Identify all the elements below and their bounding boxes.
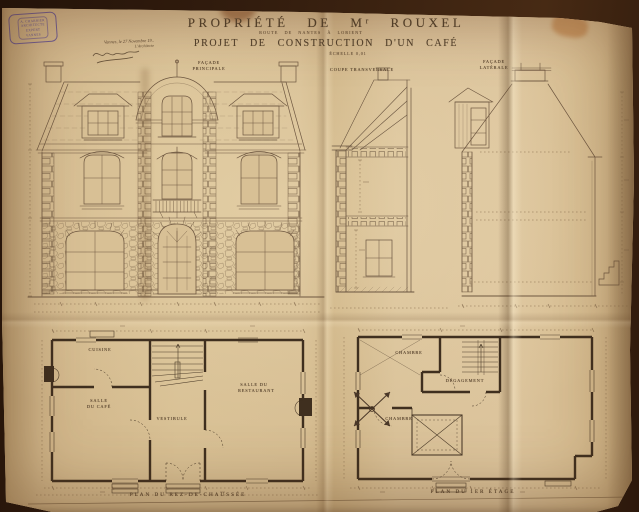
room-label-bedroom-1: Chambre xyxy=(386,350,432,356)
room-label-hall: Vestibule xyxy=(144,416,200,422)
caption-first-floor-plan: Plan du 1er Étage xyxy=(398,489,548,496)
architectural-drawing xyxy=(0,0,639,512)
first-floor-plan-drawing xyxy=(356,335,594,492)
stain xyxy=(408,5,417,11)
side-elevation-drawing xyxy=(449,63,619,296)
architect-stamp-text: A. CHARRIER Architecte Expert Vannes xyxy=(17,16,49,40)
subtitle-route: Route de Nantes à Lorient xyxy=(236,30,386,36)
architect-stamp: A. CHARRIER Architecte Expert Vannes xyxy=(8,11,58,44)
caption-ground-floor-plan: Plan du Rez-de-Chaussée xyxy=(96,492,280,499)
signature-flourish xyxy=(93,51,139,63)
project-title: Projet de Construction d'un Café xyxy=(186,37,466,50)
label-cross-section: Coupe transversale xyxy=(324,67,400,73)
cross-section-drawing xyxy=(332,68,414,292)
room-label-bedroom-2: Chambre xyxy=(376,416,422,422)
label-front-elevation: Façade principale xyxy=(184,60,234,71)
photograph-background: A. CHARRIER Architecte Expert Vannes Van… xyxy=(0,0,639,512)
stamp-line: Vannes xyxy=(21,32,46,38)
front-elevation-drawing xyxy=(28,60,324,297)
room-label-landing: Dégagement xyxy=(434,378,496,384)
scale-note: Échelle 0,01 xyxy=(316,51,380,57)
drawing-sheet: A. CHARRIER Architecte Expert Vannes Van… xyxy=(0,0,639,512)
ground-floor-plan-drawing xyxy=(44,331,312,493)
label-side-elevation: Façade latérale xyxy=(474,59,514,70)
room-label-restaurant: Salle du Restaurant xyxy=(238,382,270,393)
room-label-kitchen: Cuisine xyxy=(76,347,124,353)
room-label-cafe: Salle du Café xyxy=(86,398,112,409)
